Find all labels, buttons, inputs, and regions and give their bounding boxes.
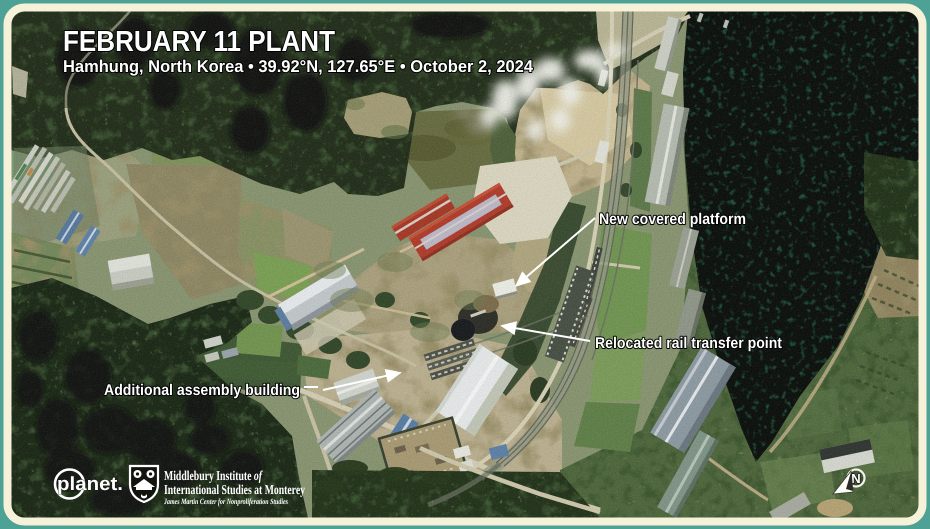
svg-text:N: N: [851, 471, 860, 486]
svg-text:New covered platform: New covered platform: [599, 211, 746, 228]
svg-text:Hamhung, North Korea • 39.92°N: Hamhung, North Korea • 39.92°N, 127.65°E…: [63, 57, 534, 76]
svg-text:Additional assembly building: Additional assembly building: [104, 382, 300, 399]
svg-text:International Studies at Monte: International Studies at Monterey: [164, 482, 305, 497]
svg-text:Relocated rail transfer point: Relocated rail transfer point: [595, 335, 782, 352]
svg-text:FEBRUARY 11 PLANT: FEBRUARY 11 PLANT: [63, 26, 335, 58]
svg-text:James Martin Center for Nonpro: James Martin Center for Nonproliferation…: [163, 497, 288, 506]
svg-text:planet.: planet.: [57, 474, 123, 495]
svg-text:Middlebury Institute of: Middlebury Institute of: [164, 468, 263, 483]
